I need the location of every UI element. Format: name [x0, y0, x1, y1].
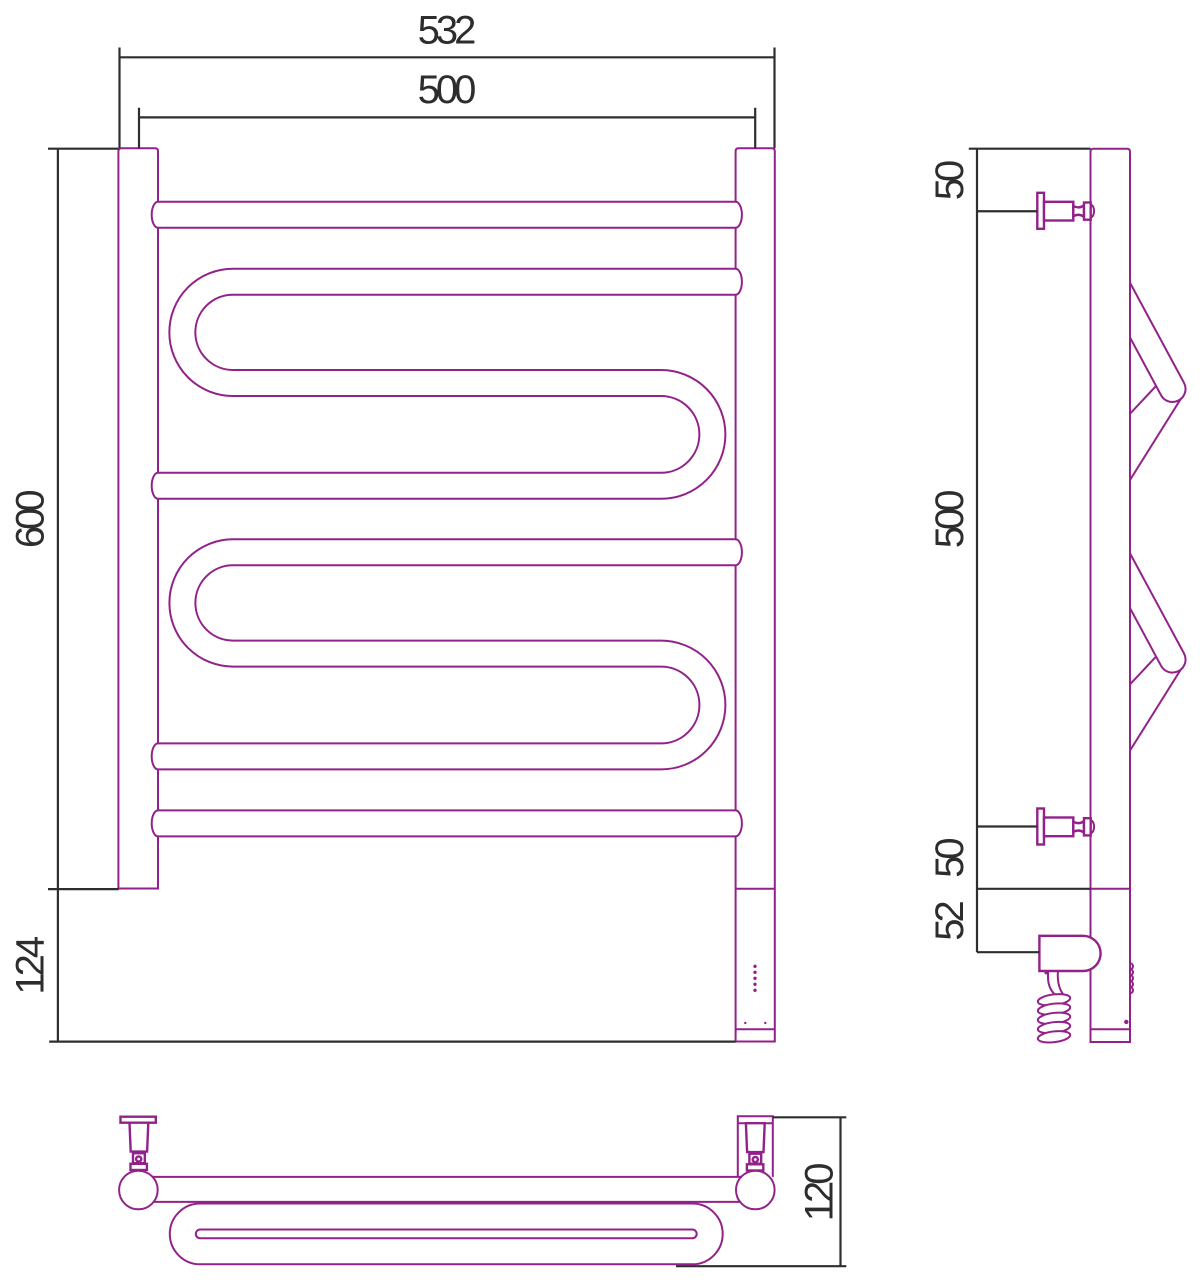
svg-text:500: 500: [418, 68, 475, 112]
svg-text:50: 50: [928, 839, 972, 878]
svg-text:50: 50: [928, 161, 972, 200]
svg-text:600: 600: [9, 491, 53, 548]
svg-text:500: 500: [928, 491, 972, 548]
svg-text:52: 52: [928, 902, 972, 941]
svg-text:532: 532: [418, 8, 475, 52]
svg-text:120: 120: [797, 1164, 841, 1221]
svg-text:124: 124: [9, 936, 53, 994]
